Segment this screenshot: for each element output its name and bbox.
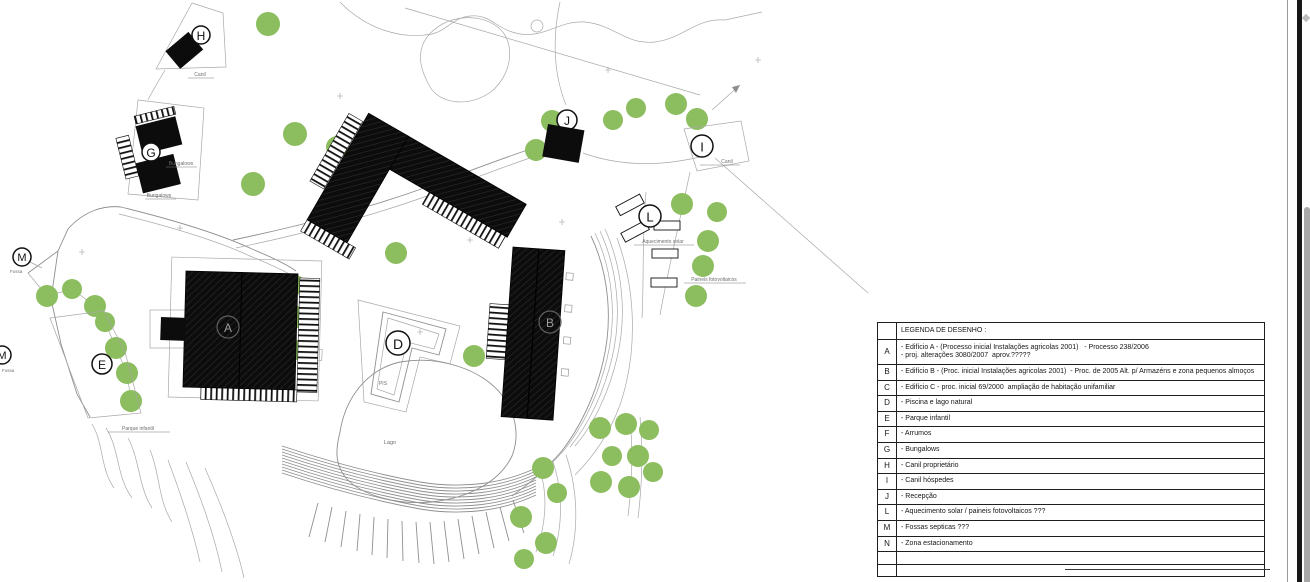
legend-key-b: B: [878, 365, 897, 380]
legend-table: LEGENDA DE DESENHO : A - Edifício A - (P…: [877, 322, 1265, 577]
legend-key-e: E: [878, 412, 897, 427]
marker-m-1: M: [13, 248, 31, 266]
legend-key-f: F: [878, 427, 897, 442]
legend-row-h: H - Canil proprietário: [878, 458, 1264, 474]
marker-l-letter: L: [646, 210, 653, 225]
marker-m2-letter: M: [0, 350, 7, 362]
marker-e: E: [92, 354, 112, 374]
marker-j-letter: J: [564, 114, 570, 128]
legend-text-d: - Piscina e lago natural: [897, 396, 1264, 411]
label-lago: Lago: [384, 440, 396, 446]
legend-key-j: J: [878, 490, 897, 505]
terrain-lines: [28, 2, 868, 496]
legend-row-i: I - Canil hóspedes: [878, 473, 1264, 489]
marker-l: L: [639, 205, 661, 227]
marker-h: H: [192, 26, 210, 44]
viewer-frame-bar: [1297, 0, 1302, 582]
legend-text-i: - Canil hóspedes: [897, 474, 1264, 489]
label-bungalows-1: Bungalows: [169, 161, 194, 167]
sheet-bottom-edge-line: [1065, 569, 1270, 570]
legend-row-d: D - Piscina e lago natural: [878, 395, 1264, 411]
legend-row-empty-1: [878, 551, 1264, 564]
label-fossa-2: Fossa: [2, 368, 15, 373]
marker-i-letter: I: [700, 140, 704, 155]
marker-i: I: [691, 135, 713, 157]
label-canil-i: Canil: [721, 159, 732, 165]
legend-key-d: D: [878, 396, 897, 411]
lake-outline: [337, 360, 516, 502]
legend-key-h: H: [878, 459, 897, 474]
label-bungalows-2: Bungalows: [147, 193, 172, 199]
building-f-arrumos: [160, 317, 186, 341]
legend-text-c: - Edifício C - proc. inicial 69/2000 amp…: [897, 381, 1264, 396]
legend-row-m: M - Fossas septicas ???: [878, 520, 1264, 536]
legend-key-m: M: [878, 521, 897, 536]
legend-text-a-1: - Edifício A - (Processo inicial Instala…: [901, 344, 1260, 353]
legend-key-g: G: [878, 443, 897, 458]
legend-row-l: L - Aquecimento solar / paineis fotovolt…: [878, 504, 1264, 520]
legend-header-key: [878, 323, 897, 339]
legend-row-a: A - Edifício A - (Processo inicial Insta…: [878, 339, 1264, 364]
legend-key-c: C: [878, 381, 897, 396]
building-j-recepcao: [542, 124, 584, 163]
marker-d-letter: D: [393, 336, 403, 352]
legend-row-f: F - Arrumos: [878, 426, 1264, 442]
marker-h-letter: H: [197, 29, 206, 43]
legend-row-c: C - Edifício C - proc. inicial 69/2000 a…: [878, 380, 1264, 396]
label-paineis-fotovoltaicos: Paineis fotovoltaicos: [691, 277, 737, 283]
sheet-right-edge-line: [1287, 0, 1288, 582]
building-a: [183, 271, 320, 402]
marker-g: G: [142, 143, 160, 161]
label-canil-h: Canil: [194, 72, 205, 78]
marker-m1-letter: M: [17, 252, 26, 264]
legend-key-a: A: [878, 340, 897, 364]
scrollbar-thumb[interactable]: [1304, 207, 1310, 582]
legend-row-n: N - Zona estacionamento: [878, 536, 1264, 552]
legend-text-m: - Fossas septicas ???: [897, 521, 1264, 536]
legend-text-e: - Parque infantil: [897, 412, 1264, 427]
viewer-window: J: [0, 0, 1310, 582]
legend-row-j: J - Recepção: [878, 489, 1264, 505]
label-pis: PIS: [379, 381, 388, 387]
legend-text-h: - Canil proprietário: [897, 459, 1264, 474]
marker-m-2: M: [0, 346, 11, 364]
legend-text-b: - Edifício B - (Proc. inicial Instalaçõe…: [897, 365, 1264, 380]
legend-text-l: - Aquecimento solar / paineis fotovoltai…: [897, 505, 1264, 520]
marker-d: D: [386, 331, 410, 355]
legend-text-n: - Zona estacionamento: [897, 537, 1264, 552]
central-building: [286, 105, 526, 322]
marker-e-letter: E: [98, 358, 106, 372]
legend-header-row: LEGENDA DE DESENHO :: [878, 323, 1264, 339]
legend-key-l: L: [878, 505, 897, 520]
legend-row-g: G - Bungalows: [878, 442, 1264, 458]
legend-text-f: - Arrumos: [897, 427, 1264, 442]
legend-text-g: - Bungalows: [897, 443, 1264, 458]
legend-row-b: B - Edifício B - (Proc. inicial Instalaç…: [878, 364, 1264, 380]
legend-key-i: I: [878, 474, 897, 489]
label-fossa-1: Fossa: [10, 269, 23, 274]
legend-text-j: - Recepção: [897, 490, 1264, 505]
trees-group: [36, 12, 727, 569]
marker-g-letter: G: [146, 146, 155, 160]
label-parque-infantil: Parque infantil: [122, 426, 154, 432]
building-b: [482, 246, 577, 421]
legend-row-e: E - Parque infantil: [878, 411, 1264, 427]
legend-header-title: LEGENDA DE DESENHO :: [897, 323, 1264, 339]
marker-b-letter: B: [546, 316, 554, 330]
legend-text-a-2: - proj. alterações 3080/2007 aprov.?????: [901, 352, 1260, 361]
legend-key-n: N: [878, 537, 897, 552]
marker-a-letter: A: [224, 321, 232, 335]
legend-row-empty-2: [878, 564, 1264, 576]
label-aquecimento-solar: Aquecimento solar: [642, 239, 684, 245]
